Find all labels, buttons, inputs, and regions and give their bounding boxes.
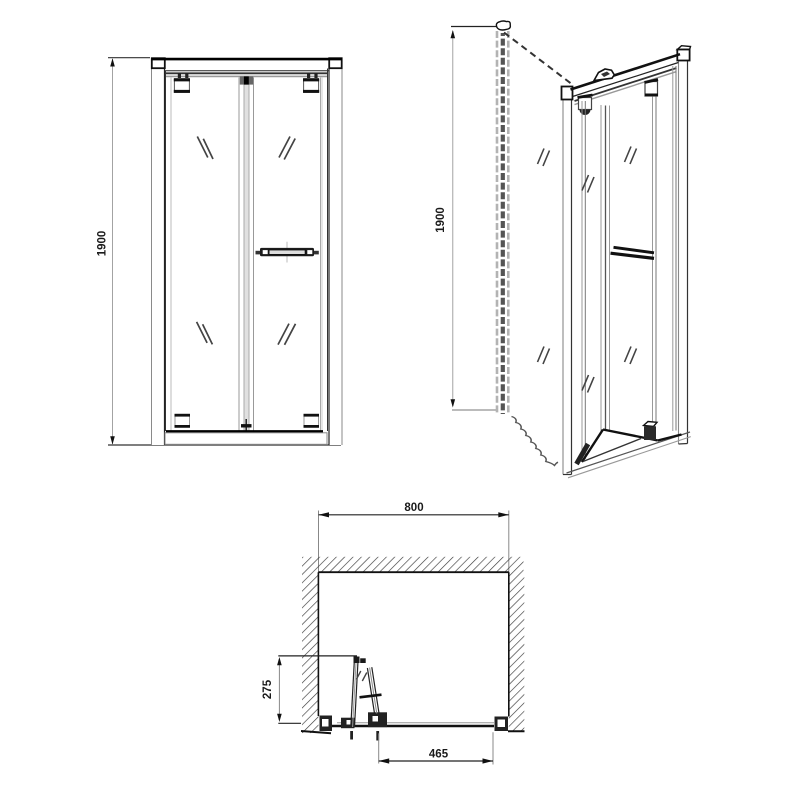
svg-text:275: 275 (262, 679, 274, 699)
svg-text:1900: 1900 (97, 231, 109, 257)
svg-text:800: 800 (404, 502, 423, 514)
svg-text:465: 465 (429, 749, 449, 761)
svg-text:1900: 1900 (435, 207, 447, 233)
